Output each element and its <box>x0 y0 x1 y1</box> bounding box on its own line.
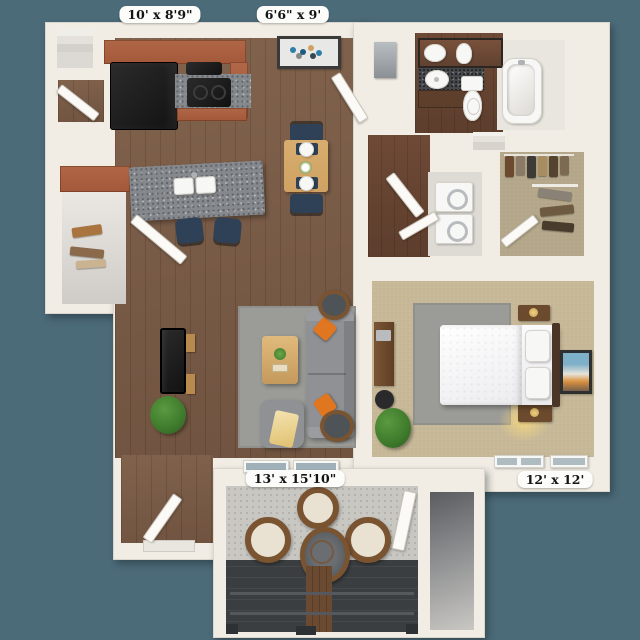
bedroom-window <box>550 455 588 468</box>
patio-chair <box>345 517 391 563</box>
dining-table <box>284 140 328 192</box>
decor-tray <box>272 364 288 372</box>
utility-cabinet <box>374 42 396 78</box>
vanity-mirror <box>418 38 503 68</box>
sofa-cushion-line <box>308 373 346 375</box>
headboard <box>552 323 560 407</box>
centerpiece <box>299 161 312 174</box>
entry-floor <box>121 455 213 543</box>
living-plant <box>150 396 186 434</box>
hanging-clothes <box>560 156 569 175</box>
duvet <box>440 325 522 405</box>
linen-shelves <box>473 132 505 150</box>
range-hood <box>186 62 222 75</box>
plate <box>299 142 314 157</box>
railing-bar <box>230 592 414 595</box>
bedroom-dimension-label: 12' x 12' <box>518 471 593 488</box>
dining-chair <box>290 194 323 213</box>
tub-faucet <box>518 60 525 65</box>
closet-shelf <box>532 184 578 187</box>
toilet-seat-line <box>467 98 480 115</box>
washer <box>435 182 473 212</box>
nightstand <box>518 305 550 321</box>
patio-dimension-label: 13' x 15'10" <box>246 470 345 487</box>
washer-door <box>447 189 468 210</box>
hanging-clothes <box>516 156 525 175</box>
door-glass <box>296 463 336 470</box>
door-glass <box>246 463 286 470</box>
island-sink-basin <box>173 177 194 195</box>
bedroom-window <box>494 455 544 468</box>
dryer-door <box>447 221 468 242</box>
table-lamp <box>529 308 538 317</box>
bed <box>440 325 558 405</box>
table-lattice <box>310 540 334 564</box>
kitchen-lower-drawers <box>177 108 247 121</box>
throw-blanket <box>269 410 300 448</box>
vanity-cabinet-front <box>418 90 468 108</box>
kitchen-peninsula <box>60 166 130 192</box>
hanging-clothes <box>549 156 558 177</box>
nightstand <box>518 404 552 422</box>
hanging-clothes <box>527 156 536 178</box>
railing-post <box>406 624 418 634</box>
kitchen-upper-cabinets <box>104 40 246 64</box>
pillow <box>525 367 550 399</box>
burner <box>193 85 208 100</box>
bathroom-sink <box>425 70 449 89</box>
bathtub <box>502 58 542 124</box>
coat-closet-interior <box>62 186 126 304</box>
bedroom-plant <box>375 408 411 448</box>
hanging-clothes <box>538 156 547 176</box>
corner-closet-interior <box>57 30 93 68</box>
mirror-toilet-reflection <box>456 43 472 64</box>
tub-basin <box>507 64 535 116</box>
bedroom-desk <box>374 322 394 386</box>
kitchen-dimension-label: 10' x 8'9" <box>119 6 200 23</box>
bar-stool <box>213 217 242 244</box>
toilet-tank <box>461 76 483 91</box>
railing-post <box>296 626 316 635</box>
hanging-clothes <box>505 156 514 177</box>
art-abstract-dots <box>290 47 296 53</box>
side-table <box>318 290 350 320</box>
dryer <box>435 214 473 244</box>
dining-wall-art <box>277 36 341 69</box>
kitchen-island <box>129 161 266 222</box>
side-table <box>320 410 354 442</box>
tv <box>160 328 186 394</box>
armchair <box>260 400 304 448</box>
window-glass <box>553 458 585 465</box>
plate <box>299 176 314 191</box>
coffee-table <box>262 336 298 384</box>
stove <box>187 78 231 107</box>
deck-runner <box>306 566 332 632</box>
bedroom-wall-art <box>560 350 592 394</box>
patio-chair <box>297 487 339 529</box>
desk-chair <box>375 390 394 409</box>
toilet-bowl <box>463 90 482 121</box>
table-plant <box>274 348 286 360</box>
balcony-storage-interior <box>430 492 474 630</box>
table-lamp <box>530 408 539 417</box>
laptop <box>376 330 391 341</box>
refrigerator <box>110 62 178 130</box>
burner <box>211 85 226 100</box>
mirror-sink-reflection <box>424 44 446 62</box>
media-shelf <box>186 334 195 352</box>
window-glass <box>521 458 541 465</box>
railing-bar <box>230 612 414 615</box>
island-sink-basin <box>195 176 216 194</box>
floor-plan: 10' x 8'9" 6'6" x 9' 13' x 15'10" 12' x … <box>0 0 640 640</box>
sink-drain <box>434 77 439 82</box>
bar-stool <box>175 217 204 245</box>
railing-post <box>226 624 238 634</box>
pillow <box>525 330 550 362</box>
patio-chair <box>245 517 291 563</box>
dining-dimension-label: 6'6" x 9' <box>257 6 329 23</box>
media-shelf <box>186 374 195 394</box>
window-glass <box>497 458 517 465</box>
